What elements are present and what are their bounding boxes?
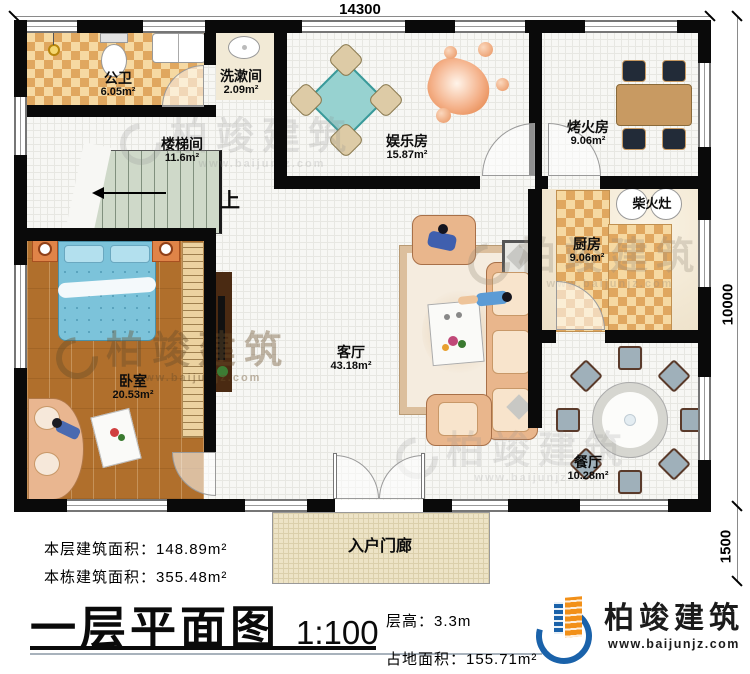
window [245,499,307,512]
floor-area-value: 148.89m² [156,541,227,558]
bed-pillow [110,245,150,263]
wall [528,330,556,343]
wall [274,32,287,189]
room-name: 餐厅 [568,454,609,470]
room-label-bedroom: 卧室 20.53m² [113,373,154,402]
storey-height-label: 层高： [386,613,434,630]
land-area-row: 占地面积：155.71m² [386,648,537,669]
window [14,265,27,368]
room-label-washroom: 洗漱间 2.09m² [220,68,262,97]
floor-area-row: 本层建筑面积：148.89m² [44,538,227,559]
decor-dot [478,42,493,57]
shower-head-icon [48,44,60,56]
room-label-living: 客厅 43.18m² [331,344,372,373]
toilet-tank [100,33,128,43]
dimension-right-lower: 1500 [718,527,735,567]
chair [662,60,686,82]
logo-url: www.baijunjz.com [608,638,740,651]
stairs-up-label: 上 [220,190,240,213]
land-area-label: 占地面积： [386,651,466,668]
person-head [52,418,62,428]
room-area: 6.05m² [101,86,136,99]
wall [204,241,216,452]
flower-decor [442,344,449,351]
room-name: 柴火灶 [632,196,671,211]
dimension-line-right [737,16,738,582]
chair [618,346,642,370]
room-area: 15.87m² [386,149,428,162]
lamp-icon [159,242,173,256]
wall [423,499,452,512]
wall [205,20,302,33]
flower-decor [118,434,125,441]
wall [26,228,216,241]
land-area-value: 155.71m² [466,651,537,668]
room-name: 烤火房 [567,119,609,135]
coffee-table [427,300,484,366]
storey-height-value: 3.3m [434,613,471,630]
sofa-cushion [492,330,530,374]
room-area: 9.06m² [570,252,605,265]
shower-cord [53,31,54,45]
lamp-icon [38,242,52,256]
window [302,20,405,33]
storey-height-row: 层高：3.3m [386,610,471,631]
room-name: 洗漱间 [220,68,262,84]
room-area: 9.06m² [567,135,609,148]
stairs-direction-arrow [104,192,166,194]
shower-units-divider [178,34,179,62]
dimension-right-upper: 10000 [720,277,737,333]
tv-screen [218,296,225,360]
wall [605,330,710,343]
person-head [438,224,448,234]
room-area: 10.28m² [568,470,609,483]
cup-icon [456,312,462,318]
wall [698,20,711,63]
room-label-fire-room: 烤火房 9.06m² [567,119,609,148]
wall [274,176,480,189]
room-area: 11.6m² [161,152,203,165]
window [455,20,525,33]
door-leaf [421,453,425,499]
flower-decor [458,340,466,348]
wall [698,460,711,512]
room-area: 43.18m² [331,360,372,373]
cup-icon [444,314,450,320]
wall [14,20,27,97]
room-name: 入户门廊 [348,538,412,555]
wall [14,368,27,512]
building-area-label: 本栋建筑面积： [44,569,156,586]
company-logo: 柏竣建筑 www.baijunjz.com [534,594,744,660]
chair [622,128,646,150]
dining-table-center [624,414,636,426]
wall [204,32,216,65]
building-area-value: 355.48m² [156,569,227,586]
room-label-stairwell: 楼梯间 11.6m² [161,136,203,165]
window [698,63,711,147]
room-label-kitchen: 厨房 9.06m² [570,236,605,265]
chair [662,128,686,150]
chair [622,60,646,82]
chair [618,470,642,494]
shower-units [152,33,206,63]
room-area: 2.09m² [220,84,262,97]
wall [14,155,27,265]
decor-dot [496,78,509,91]
wall [508,499,580,512]
window [580,499,668,512]
dimension-top: 14300 [339,1,381,18]
wardrobe [182,242,204,438]
kitchen-counter-center [608,224,672,332]
floor-area-label: 本层建筑面积： [44,541,156,558]
door-leaf [333,453,337,499]
room-label-dining: 餐厅 10.28m² [568,454,609,483]
building-area-row: 本栋建筑面积：355.48m² [44,566,227,587]
plant-icon [217,366,228,377]
room-area: 20.53m² [113,389,154,402]
label-wood-stove: 柴火灶 [632,197,671,212]
decor-dot [444,46,457,59]
title-underline [30,646,376,650]
window [27,20,77,33]
logo-icon [534,594,596,660]
stairs-arrow-head [92,187,104,199]
window [452,499,508,512]
room-name: 客厅 [331,344,372,360]
window [143,20,205,33]
window [698,377,711,460]
wall [528,189,542,428]
sofa-cushion [34,452,60,476]
room-name: 卧室 [113,373,154,389]
flower-decor [448,336,458,346]
wall [77,20,143,33]
window [14,97,27,155]
room-name: 公卫 [101,70,136,86]
wall [167,499,245,512]
room-label-bathroom: 公卫 6.05m² [101,70,136,99]
person-head [502,292,512,302]
wall [307,499,335,512]
logo-name: 柏竣建筑 [604,604,744,634]
room-label-entertainment: 娱乐房 15.87m² [386,133,428,162]
room-name: 楼梯间 [161,136,203,152]
armchair-cushion [438,402,478,436]
fire-room-table [616,84,692,126]
stairs-up-text: 上 [220,190,240,212]
window [67,499,167,512]
window [585,20,677,33]
wall [405,20,455,33]
wall [600,176,710,189]
wall [535,176,548,189]
window [698,220,711,287]
bed-pillow [64,245,104,263]
room-name: 娱乐房 [386,133,428,149]
room-name: 厨房 [570,236,605,252]
chair [556,408,580,432]
decor-dot [436,108,451,123]
washbasin-drain [242,45,247,50]
room-label-porch: 入户门廊 [348,538,412,556]
